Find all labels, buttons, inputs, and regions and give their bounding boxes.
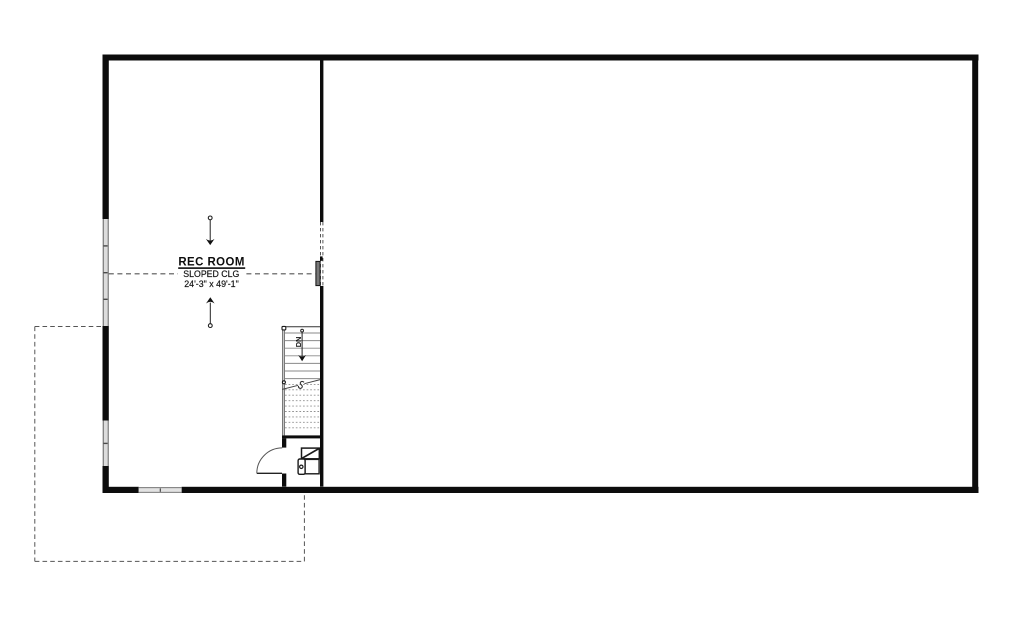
- svg-text:REC ROOM: REC ROOM: [178, 255, 245, 269]
- svg-text:SLOPED CLG: SLOPED CLG: [183, 269, 239, 279]
- svg-text:DN: DN: [294, 337, 303, 348]
- svg-text:24'-3" x 49'-1": 24'-3" x 49'-1": [184, 279, 239, 289]
